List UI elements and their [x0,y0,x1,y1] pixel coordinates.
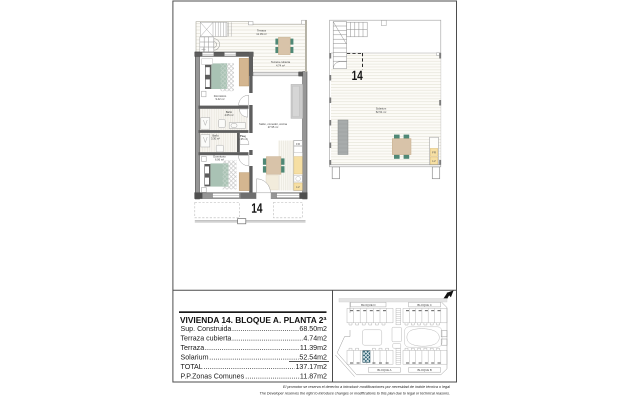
svg-text:Solarium: Solarium [181,354,209,362]
svg-text:LV: LV [296,185,299,189]
svg-text:27.95 m²: 27.95 m² [268,125,279,129]
svg-text:The Developer reserves the rig: The Developer reserves the right to intr… [260,391,451,396]
svg-text:11.87m2: 11.87m2 [300,373,327,381]
svg-text:El promotor se reserva el dere: El promotor se reserva el derecho a intr… [283,384,450,389]
svg-text:BLOQUE D: BLOQUE D [361,303,375,307]
svg-text:LV: LV [432,159,435,163]
svg-text:BLOQUE C: BLOQUE C [417,303,431,307]
svg-text:Sup. Construida: Sup. Construida [181,325,232,333]
svg-text:TOTAL: TOTAL [181,363,203,371]
svg-text:BLOQUE A: BLOQUE A [377,368,391,372]
svg-text:11.39m2: 11.39m2 [300,344,327,352]
svg-text:52.54m2: 52.54m2 [299,354,327,362]
svg-text:1.35 m²: 1.35 m² [238,137,247,141]
svg-text:BLOQUE B: BLOQUE B [417,368,431,372]
svg-text:11.39 m²: 11.39 m² [256,32,267,36]
svg-text:Terraza: Terraza [181,344,205,352]
svg-text:68.50m2: 68.50m2 [299,325,327,333]
svg-text:3.30 m²: 3.30 m² [211,137,220,141]
svg-text:137.17m2: 137.17m2 [295,363,327,371]
svg-text:Terraza cubierta: Terraza cubierta [181,335,232,343]
svg-text:VIVIENDA 14. BLOQUE A. PLANTA: VIVIENDA 14. BLOQUE A. PLANTA 2ª [180,316,327,325]
svg-text:4.74 m²: 4.74 m² [276,63,285,67]
svg-text:4.74m2: 4.74m2 [303,335,327,343]
svg-text:6.06 m²: 6.06 m² [215,158,224,162]
svg-text:9.42 m²: 9.42 m² [215,97,224,101]
svg-text:52.54 m²: 52.54 m² [376,110,387,114]
svg-text:P.P.Zonas Comunes: P.P.Zonas Comunes [181,373,245,381]
svg-text:4.05 m²: 4.05 m² [224,113,233,117]
